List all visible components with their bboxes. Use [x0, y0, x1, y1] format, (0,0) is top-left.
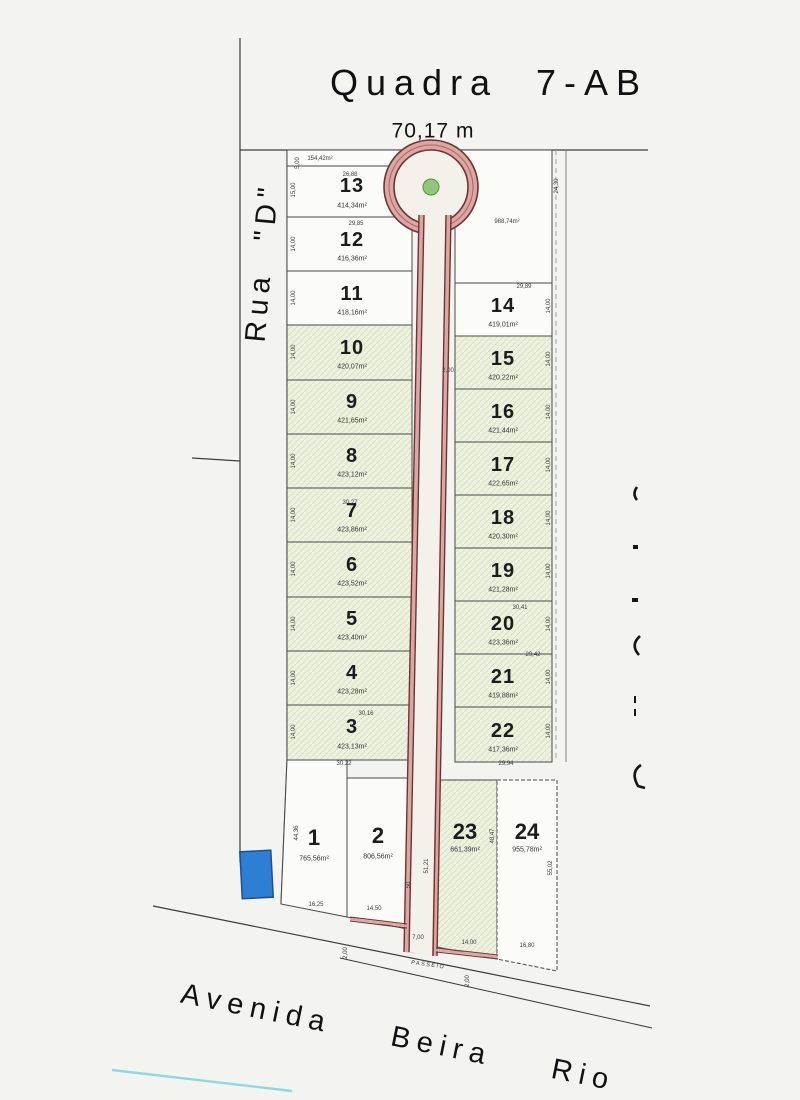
lot-24-area: 955,78m² — [512, 847, 542, 854]
meas-left-14-00: 14,00 — [291, 507, 297, 522]
lot-8-area: 423,12m² — [337, 472, 367, 479]
meas-right-14-00: 14,00 — [546, 298, 552, 313]
meas-55-02: 55,02 — [548, 860, 554, 875]
meas-29-85: 29,85 — [348, 221, 363, 227]
lot-8-number: 8 — [346, 446, 358, 466]
meas-30-16: 30,16 — [358, 711, 373, 717]
plat-map-page: Quadra 7-AB 70,17 m Rua "D" Avenida Beir… — [0, 0, 800, 1100]
lot-19-number: 19 — [491, 561, 515, 581]
plat-drawing — [0, 0, 800, 1100]
lot-13-number: 13 — [340, 176, 364, 196]
meas-5-00: 5,00 — [295, 157, 301, 169]
cyan-line — [112, 1070, 292, 1091]
page-title: Quadra 7-AB — [330, 62, 648, 104]
lot-16-number: 16 — [491, 402, 515, 422]
meas-right-14-00: 14,00 — [546, 723, 552, 738]
meas-30-41: 30,41 — [512, 605, 527, 611]
meas-50: 50 — [406, 882, 412, 889]
lot-6-area: 423,52m² — [337, 581, 367, 588]
meas-right-14-00: 14,00 — [546, 669, 552, 684]
blue-marker — [240, 850, 273, 899]
lot-3-number: 3 — [346, 717, 358, 737]
lot-18-number: 18 — [491, 508, 515, 528]
meas-right-14-00: 14,00 — [546, 457, 552, 472]
lot-20-area: 423,36m² — [488, 640, 518, 647]
meas-left-14-00: 14,00 — [291, 724, 297, 739]
lot-1-number: 1 — [308, 827, 320, 849]
lot-15-area: 420,22m² — [488, 375, 518, 382]
lot-22-area: 417,36m² — [488, 747, 518, 754]
lot-10-area: 420,07m² — [337, 364, 367, 371]
meas-right-14-00: 14,00 — [546, 404, 552, 419]
meas-26-88: 26,88 — [342, 172, 357, 178]
area-988-label: 988,74m² — [494, 219, 519, 225]
meas-left-14-00: 14,00 — [291, 236, 297, 251]
meas-16-80: 16,80 — [519, 943, 534, 949]
meas-14-00-bottom: 14,00 — [461, 940, 476, 946]
lot-5-area: 423,40m² — [337, 635, 367, 642]
lot-12-area: 416,36m² — [337, 256, 367, 263]
lot-24-number: 24 — [515, 821, 539, 843]
meas-left-14-00: 14,00 — [291, 561, 297, 576]
lot-16-area: 421,44m² — [488, 428, 518, 435]
meas-2-00-right: 2,00 — [465, 975, 471, 987]
lot-18-area: 420,30m² — [488, 534, 518, 541]
meas-51-21: 51,21 — [424, 858, 430, 873]
lot-10-number: 10 — [340, 338, 364, 358]
meas-right-14-00: 14,00 — [546, 351, 552, 366]
lot-23-number: 23 — [453, 821, 477, 843]
meas-29-94: 29,94 — [498, 761, 513, 767]
meas-left-14-00: 14,00 — [291, 616, 297, 631]
lot-4-number: 4 — [346, 663, 358, 683]
meas-29-89: 29,89 — [516, 284, 531, 290]
lot-17-number: 17 — [491, 455, 515, 475]
meas-left-14-00: 14,00 — [291, 453, 297, 468]
lot-15-number: 15 — [491, 349, 515, 369]
meas-right-14-00: 14,00 — [546, 563, 552, 578]
meas-left-14-00: 14,00 — [291, 399, 297, 414]
meas-left-14-00: 14,00 — [291, 670, 297, 685]
lot-9-number: 9 — [346, 392, 358, 412]
lot-11-area: 418,16m² — [337, 310, 367, 317]
lot-14-number: 14 — [491, 296, 515, 316]
meas-24-30: 24,30 — [554, 178, 560, 193]
lot-13-area: 414,34m² — [337, 203, 367, 210]
title-code: 7-AB — [536, 62, 648, 104]
top-width-dimension: 70,17 m — [392, 121, 475, 142]
lot-22-number: 22 — [491, 721, 515, 741]
meas-right-14-00: 14,00 — [546, 616, 552, 631]
title-quadra: Quadra — [330, 62, 498, 104]
meas-48-47: 48,47 — [490, 828, 496, 843]
lot-12-number: 12 — [340, 230, 364, 250]
meas-left-14-00: 14,00 — [291, 290, 297, 305]
meas-road-2-00: 2,00 — [442, 368, 454, 374]
meas-16-25: 16,25 — [308, 902, 323, 908]
meas-44-36: 44,36 — [294, 825, 300, 840]
lot-4-area: 423,28m² — [337, 689, 367, 696]
lot-7-area: 423,86m² — [337, 527, 367, 534]
lot-17-area: 422,65m² — [488, 481, 518, 488]
meas-2-00-left: 2,00 — [343, 947, 349, 959]
lot-11-number: 11 — [340, 284, 363, 304]
lot-2-area: 806,56m² — [363, 854, 393, 861]
meas-right-14-00: 14,00 — [546, 510, 552, 525]
lot-2-number: 2 — [372, 825, 384, 847]
meas-7-00: 7,00 — [412, 935, 424, 941]
clipped-edge-text-fragments — [632, 487, 645, 788]
lot-23-shape — [432, 780, 497, 959]
lot-23-area: 661,39m² — [450, 847, 480, 854]
lot-1-area: 765,56m² — [299, 856, 329, 863]
lot-9-area: 421,65m² — [337, 418, 367, 425]
lot-21-area: 419,88m² — [488, 693, 518, 700]
meas-14-50: 14,50 — [366, 906, 381, 912]
meas-left-15-00: 15,00 — [291, 182, 297, 197]
lot-14-area: 419,01m² — [488, 322, 518, 329]
sliver-area-label: 154,42m² — [307, 156, 332, 162]
meas-29-42: 29,42 — [525, 652, 540, 658]
lot-3-area: 423,13m² — [337, 744, 367, 751]
meas-left-14-00: 14,00 — [291, 344, 297, 359]
meas-30-27: 30,27 — [342, 500, 357, 506]
meas-30-22: 30,22 — [336, 761, 351, 767]
lot-19-area: 421,28m² — [488, 587, 518, 594]
lot-5-number: 5 — [346, 609, 358, 629]
green-center-dot — [423, 179, 439, 195]
lot-6-number: 6 — [346, 555, 358, 575]
lot-21-number: 21 — [491, 667, 515, 687]
lot-20-number: 20 — [491, 614, 515, 634]
